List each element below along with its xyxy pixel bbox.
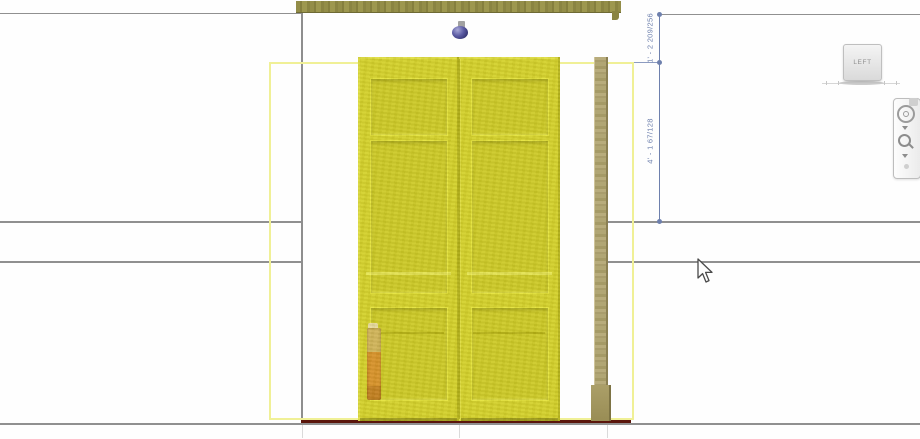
below-floor-tick — [459, 425, 460, 438]
steering-wheel-icon[interactable] — [897, 105, 915, 123]
chevron-down-icon[interactable] — [902, 126, 908, 130]
chevron-down-icon[interactable] — [902, 154, 908, 158]
level-line-upper-left — [0, 221, 301, 223]
below-floor-tick — [607, 425, 608, 438]
ceiling-line-right — [659, 14, 920, 15]
ceiling-line-left — [0, 13, 302, 14]
door-leaf-left[interactable] — [358, 57, 459, 421]
viewcube-face-label: LEFT — [853, 59, 871, 66]
viewcube[interactable]: LEFT — [843, 44, 882, 81]
door-jamb-base — [591, 385, 611, 421]
level-line-lower-right — [606, 261, 920, 263]
door-handle — [367, 328, 381, 400]
steering-wheel-hub — [903, 111, 909, 117]
dimension-anchor-dot[interactable] — [657, 60, 662, 65]
door-panel — [370, 78, 448, 136]
dimension-text-lower[interactable]: 4' - 1 67/128 — [646, 118, 655, 163]
door-jamb — [594, 57, 608, 421]
dimension-anchor-dot[interactable] — [657, 12, 662, 17]
viewcube-compass-tick — [884, 81, 885, 85]
dimension-text-upper[interactable]: 1' - 2 209/256 — [646, 13, 655, 63]
viewcube-compass-tick — [826, 81, 827, 85]
below-floor-tick — [302, 425, 303, 438]
wall-left-edge — [301, 13, 303, 423]
door-rail — [372, 332, 444, 334]
door-panel — [370, 140, 448, 294]
door-leaf-right[interactable] — [459, 57, 560, 421]
double-door[interactable] — [358, 57, 560, 421]
door-rail — [473, 332, 545, 334]
door-panel — [471, 140, 549, 294]
cursor-pointer — [697, 258, 715, 288]
selection-outline-left — [269, 62, 271, 420]
dimension-anchor-dot[interactable] — [657, 219, 662, 224]
header-beam-end — [612, 11, 619, 20]
viewcube-compass-tick — [896, 81, 897, 85]
door-panel — [370, 307, 448, 401]
navigation-bar-tab[interactable] — [909, 98, 918, 106]
door-panel — [471, 78, 549, 136]
header-beam — [296, 1, 621, 13]
door-leaf-gap — [458, 59, 460, 419]
door-rail — [366, 272, 451, 275]
level-line-upper-right — [606, 221, 920, 223]
viewcube-shadow — [839, 81, 884, 85]
door-panel — [471, 307, 549, 401]
floor-line — [0, 423, 920, 425]
door-rail — [467, 272, 552, 275]
elevation-view-canvas[interactable]: 1' - 2 209/256 4' - 1 67/128 LEFT — [0, 0, 920, 439]
selection-outline-right — [632, 62, 634, 420]
level-line-lower-left — [0, 261, 301, 263]
navigation-bar-dot — [904, 164, 909, 169]
knob-fixture[interactable] — [452, 26, 468, 39]
dimension-line — [659, 14, 660, 221]
